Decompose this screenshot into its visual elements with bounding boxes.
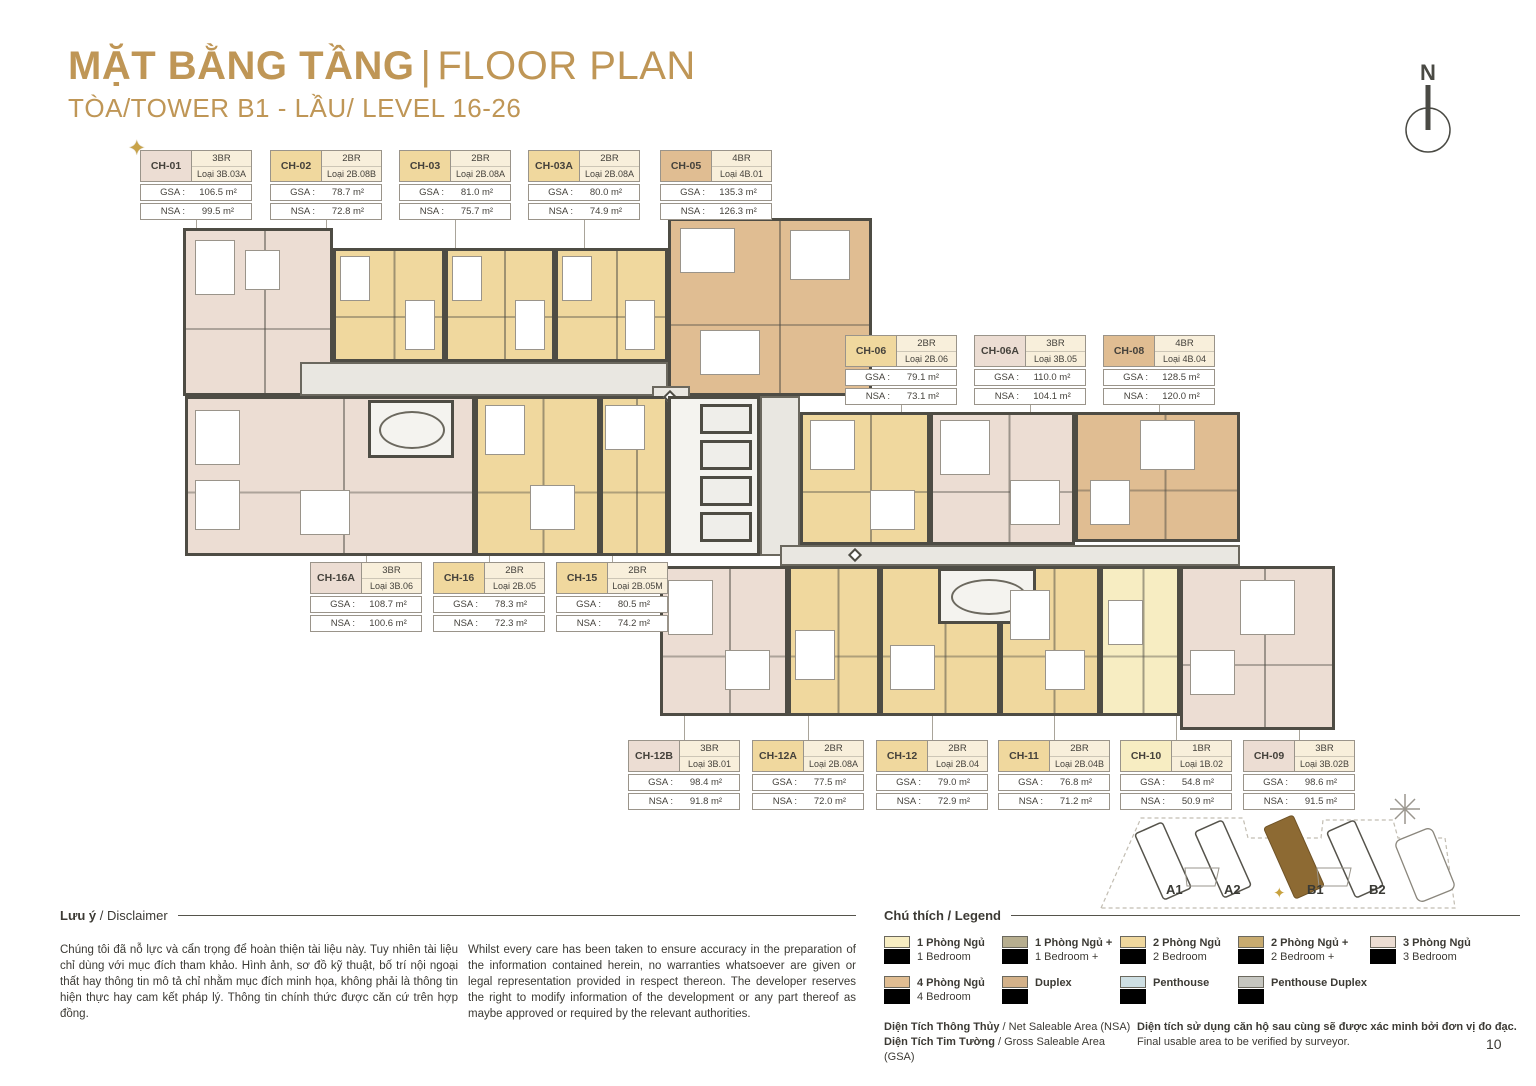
- plan-unit-ch-08: [1075, 412, 1240, 542]
- room: [940, 420, 990, 475]
- compass-icon: N: [1398, 58, 1458, 163]
- legend-label-vn: 3 Phòng Ngủ: [1403, 936, 1471, 950]
- disclaimer-title-en: / Disclaimer: [96, 908, 168, 923]
- room: [195, 240, 235, 295]
- nsa-label: NSA :: [311, 616, 355, 631]
- card-connector-line: [1176, 682, 1177, 742]
- plan-corridor-bottom: [780, 545, 1240, 566]
- room: [668, 580, 713, 635]
- unit-card-header: CH-15 2BR Loại 2B.05M: [556, 562, 668, 594]
- nsa-label: NSA :: [999, 794, 1043, 809]
- disclaimer-text-vn: Chúng tôi đã nỗ lực và cẩn trọng để hoàn…: [60, 942, 458, 1022]
- legend-swatch: [884, 936, 910, 964]
- card-connector-line: [1159, 399, 1160, 459]
- gsa-value: 78.7 m²: [315, 185, 381, 200]
- unit-id: CH-16A: [311, 563, 362, 593]
- room: [452, 256, 482, 301]
- gsa-label: GSA :: [846, 370, 890, 385]
- unit-card-ch-01: CH-01 3BR Loại 3B.03A GSA :106.5 m² NSA …: [140, 150, 252, 220]
- room: [890, 645, 935, 690]
- legend-swatch: [1002, 936, 1028, 964]
- unit-layout-code: Loại 2B.06: [897, 352, 956, 366]
- unit-id: CH-02: [271, 151, 322, 181]
- page-number: 10: [1486, 1036, 1502, 1052]
- card-connector-line: [684, 682, 685, 742]
- page-title-vn: MẶT BẰNG TẦNG: [68, 44, 414, 88]
- room: [1090, 480, 1130, 525]
- elevator-shaft: [700, 512, 752, 542]
- room: [700, 330, 760, 375]
- plan-unit-ch-16: [475, 396, 600, 556]
- unit-layout-code: Loại 3B.05: [1026, 352, 1085, 366]
- building-label-a2: A2: [1224, 882, 1241, 897]
- unit-id: CH-05: [661, 151, 712, 181]
- legend-label-en: 1 Bedroom +: [1035, 950, 1112, 964]
- unit-id: CH-10: [1121, 741, 1172, 771]
- unit-card-header: CH-06 2BR Loại 2B.06: [845, 335, 957, 367]
- card-connector-line: [489, 504, 490, 564]
- unit-card-ch-06a: CH-06A 3BR Loại 3B.05 GSA :110.0 m² NSA …: [974, 335, 1086, 405]
- elevator-core: [668, 396, 760, 556]
- card-connector-line: [612, 504, 613, 564]
- unit-card-ch-05: CH-05 4BR Loại 4B.01 GSA :135.3 m² NSA :…: [660, 150, 772, 220]
- unit-id: CH-12: [877, 741, 928, 771]
- gsa-value: 79.1 m²: [890, 370, 956, 385]
- nsa-value: 74.2 m²: [601, 616, 667, 631]
- card-connector-line: [716, 214, 717, 274]
- header: MẶT BẰNG TẦNG|FLOOR PLAN TÒA/TOWER B1 - …: [68, 44, 696, 122]
- unit-layout-code: Loại 2B.04B: [1050, 757, 1109, 771]
- legend-item: Duplex: [1002, 976, 1120, 1004]
- gsa-value: 79.0 m²: [921, 775, 987, 790]
- unit-layout-code: Loại 2B.05: [485, 579, 544, 593]
- room: [245, 250, 280, 290]
- unit-id: CH-15: [557, 563, 608, 593]
- unit-card-ch-12: CH-12 2BR Loại 2B.04 GSA :79.0 m² NSA :7…: [876, 740, 988, 810]
- nsa-label: NSA :: [529, 204, 573, 219]
- unit-id: CH-16: [434, 563, 485, 593]
- unit-card-ch-08: CH-08 4BR Loại 4B.04 GSA :128.5 m² NSA :…: [1103, 335, 1215, 405]
- title-separator: |: [414, 44, 437, 88]
- legend-label-en: 2 Bedroom: [1153, 950, 1221, 964]
- legend-item: 1 Phòng Ngủ1 Bedroom: [884, 936, 1002, 964]
- star-icon: ✦: [1273, 885, 1286, 902]
- gsa-value: 54.8 m²: [1165, 775, 1231, 790]
- unit-id: CH-01: [141, 151, 192, 181]
- elevator-shaft: [700, 440, 752, 470]
- plan-unit-ch-06: [800, 412, 930, 545]
- disclaimer-title-vn: Lưu ý: [60, 908, 96, 923]
- room: [725, 650, 770, 690]
- unit-card-ch-03a: CH-03A 2BR Loại 2B.08A GSA :80.0 m² NSA …: [528, 150, 640, 220]
- room: [1108, 600, 1143, 645]
- plan-unit-ch-12a: [788, 566, 880, 716]
- unit-card-ch-12b: CH-12B 3BR Loại 3B.01 GSA :98.4 m² NSA :…: [628, 740, 740, 810]
- nsa-value: 71.2 m²: [1043, 794, 1109, 809]
- gsa-label: GSA :: [877, 775, 921, 790]
- legend-label-vn: 4 Phòng Ngủ: [917, 976, 985, 990]
- unit-id: CH-12B: [629, 741, 680, 771]
- room: [1240, 580, 1295, 635]
- card-connector-line: [1054, 682, 1055, 742]
- legend-label-en: 2 Bedroom +: [1271, 950, 1348, 964]
- legend-item: Penthouse: [1120, 976, 1238, 1004]
- legend-label-vn: Penthouse Duplex: [1271, 976, 1367, 990]
- gsa-label: GSA :: [434, 597, 478, 612]
- nsa-label: NSA :: [629, 794, 673, 809]
- unit-bedroom-type: 2BR: [485, 563, 544, 579]
- legend-title-en: / Legend: [944, 908, 1001, 923]
- room: [562, 256, 592, 301]
- nsa-note-en: / Net Saleable Area (NSA): [1000, 1021, 1131, 1033]
- card-connector-line: [366, 504, 367, 564]
- gsa-value: 110.0 m²: [1019, 370, 1085, 385]
- nsa-value: 72.0 m²: [797, 794, 863, 809]
- unit-card-header: CH-03 2BR Loại 2B.08A: [399, 150, 511, 182]
- gsa-label: GSA :: [975, 370, 1019, 385]
- building-label-b1: B1: [1307, 882, 1324, 897]
- building-label-b2: B2: [1369, 882, 1386, 897]
- legend-label-vn: 2 Phòng Ngủ: [1153, 936, 1221, 950]
- plan-unit-ch-12: [880, 566, 1000, 716]
- legend-label-vn: 1 Phòng Ngủ: [917, 936, 985, 950]
- unit-bedroom-type: 2BR: [451, 151, 510, 167]
- legend-label-vn: 2 Phòng Ngủ +: [1271, 936, 1348, 950]
- unit-id: CH-11: [999, 741, 1050, 771]
- room: [605, 405, 645, 450]
- legend-swatch: [1370, 936, 1396, 964]
- room: [680, 228, 735, 273]
- plan-unit-ch-01: [183, 228, 333, 396]
- unit-card-ch-09: CH-09 3BR Loại 3B.02B GSA :98.6 m² NSA :…: [1243, 740, 1355, 810]
- door-marker: [663, 390, 677, 404]
- unit-card-ch-12a: CH-12A 2BR Loại 2B.08A GSA :77.5 m² NSA …: [752, 740, 864, 810]
- unit-card-header: CH-03A 2BR Loại 2B.08A: [528, 150, 640, 182]
- unit-bedroom-type: 2BR: [897, 336, 956, 352]
- legend-item: 4 Phòng Ngủ4 Bedroom: [884, 976, 1002, 1004]
- room: [625, 300, 655, 350]
- gsa-value: 80.0 m²: [573, 185, 639, 200]
- card-connector-line: [901, 399, 902, 459]
- card-connector-line: [584, 214, 585, 274]
- legend-item: 3 Phòng Ngủ3 Bedroom: [1370, 936, 1471, 964]
- unit-bedroom-type: 2BR: [1050, 741, 1109, 757]
- gsa-value: 128.5 m²: [1148, 370, 1214, 385]
- unit-id: CH-03A: [529, 151, 580, 181]
- legend-item: 1 Phòng Ngủ +1 Bedroom +: [1002, 936, 1120, 964]
- room: [340, 256, 370, 301]
- gsa-label: GSA :: [629, 775, 673, 790]
- unit-card-header: CH-05 4BR Loại 4B.01: [660, 150, 772, 182]
- gsa-label: GSA :: [311, 597, 355, 612]
- gsa-value: 98.6 m²: [1288, 775, 1354, 790]
- nsa-label: NSA :: [1104, 389, 1148, 404]
- room: [515, 300, 545, 350]
- disclaimer-title: Lưu ý / Disclaimer: [60, 908, 856, 923]
- room: [405, 300, 435, 350]
- room: [1045, 650, 1085, 690]
- unit-bedroom-type: 3BR: [680, 741, 739, 757]
- nsa-label: NSA :: [434, 616, 478, 631]
- nsa-value: 75.7 m²: [444, 204, 510, 219]
- unit-bedroom-type: 3BR: [1026, 336, 1085, 352]
- stair-core: [938, 568, 1036, 624]
- nsa-value: 91.5 m²: [1288, 794, 1354, 809]
- nsa-label: NSA :: [753, 794, 797, 809]
- legend-label-vn: 1 Phòng Ngủ +: [1035, 936, 1112, 950]
- plan-link-top: [652, 386, 690, 412]
- page-subtitle: TÒA/TOWER B1 - LẦU/ LEVEL 16-26: [68, 94, 696, 122]
- unit-bedroom-type: 3BR: [192, 151, 251, 167]
- unit-card-header: CH-12A 2BR Loại 2B.08A: [752, 740, 864, 772]
- plan-unit-ch-16a: [185, 396, 475, 556]
- unit-card-header: CH-08 4BR Loại 4B.04: [1103, 335, 1215, 367]
- site-minimap: ✦ A1 A2 B1 B2: [1093, 790, 1465, 925]
- card-connector-line: [455, 214, 456, 274]
- stair-core: [368, 400, 454, 458]
- nsa-value: 104.1 m²: [1019, 389, 1085, 404]
- unit-card-ch-06: CH-06 2BR Loại 2B.06 GSA :79.1 m² NSA :7…: [845, 335, 957, 405]
- card-connector-line: [326, 214, 327, 274]
- nsa-value: 99.5 m²: [185, 204, 251, 219]
- gsa-label: GSA :: [661, 185, 705, 200]
- nsa-value: 72.3 m²: [478, 616, 544, 631]
- gsa-label: GSA :: [1104, 370, 1148, 385]
- card-connector-line: [808, 682, 809, 742]
- unit-bedroom-type: 4BR: [1155, 336, 1214, 352]
- legend-swatch: [1120, 976, 1146, 1004]
- unit-card-ch-03: CH-03 2BR Loại 2B.08A GSA :81.0 m² NSA :…: [399, 150, 511, 220]
- unit-layout-code: Loại 2B.05M: [608, 579, 667, 593]
- room: [1010, 590, 1050, 640]
- unit-bedroom-type: 4BR: [712, 151, 771, 167]
- gsa-label: GSA :: [271, 185, 315, 200]
- legend-swatch: [1120, 936, 1146, 964]
- nsa-note-vn: Diện Tích Thông Thủy: [884, 1021, 1000, 1033]
- unit-card-ch-16: CH-16 2BR Loại 2B.05 GSA :78.3 m² NSA :7…: [433, 562, 545, 632]
- building-other-outline: [1394, 827, 1456, 903]
- stair-oval: [379, 411, 445, 449]
- room: [1140, 420, 1195, 470]
- card-connector-line: [196, 214, 197, 274]
- legend-item: 2 Phòng Ngủ +2 Bedroom +: [1238, 936, 1370, 964]
- unit-card-header: CH-10 1BR Loại 1B.02: [1120, 740, 1232, 772]
- unit-layout-code: Loại 2B.04: [928, 757, 987, 771]
- verify-note-en: Final usable area to be verified by surv…: [1137, 1035, 1523, 1050]
- unit-layout-code: Loại 3B.01: [680, 757, 739, 771]
- unit-bedroom-type: 2BR: [580, 151, 639, 167]
- gsa-label: GSA :: [999, 775, 1043, 790]
- unit-layout-code: Loại 4B.04: [1155, 352, 1214, 366]
- unit-card-ch-02: CH-02 2BR Loại 2B.08B GSA :78.7 m² NSA :…: [270, 150, 382, 220]
- legend-label-vn: Penthouse: [1153, 976, 1209, 990]
- room: [1190, 650, 1235, 695]
- room: [300, 490, 350, 535]
- nsa-label: NSA :: [557, 616, 601, 631]
- gsa-value: 135.3 m²: [705, 185, 771, 200]
- unit-bedroom-type: 2BR: [804, 741, 863, 757]
- legend-items: 1 Phòng Ngủ1 Bedroom 1 Phòng Ngủ +1 Bedr…: [884, 936, 1471, 1004]
- nsa-value: 91.8 m²: [673, 794, 739, 809]
- nsa-value: 126.3 m²: [705, 204, 771, 219]
- nsa-value: 73.1 m²: [890, 389, 956, 404]
- gsa-label: GSA :: [529, 185, 573, 200]
- gsa-label: GSA :: [557, 597, 601, 612]
- unit-card-ch-10: CH-10 1BR Loại 1B.02 GSA :54.8 m² NSA :5…: [1120, 740, 1232, 810]
- card-connector-line: [1030, 399, 1031, 459]
- nsa-label: NSA :: [846, 389, 890, 404]
- verify-note-vn: Diện tích sử dụng căn hộ sau cùng sẽ đượ…: [1137, 1021, 1517, 1033]
- unit-layout-code: Loại 2B.08B: [322, 167, 381, 181]
- unit-bedroom-type: 3BR: [362, 563, 421, 579]
- gsa-label: GSA :: [141, 185, 185, 200]
- nsa-label: NSA :: [1121, 794, 1165, 809]
- unit-bedroom-type: 2BR: [608, 563, 667, 579]
- stair-oval: [951, 579, 1027, 615]
- unit-card-ch-11: CH-11 2BR Loại 2B.04B GSA :76.8 m² NSA :…: [998, 740, 1110, 810]
- plan-unit-ch-03a: [555, 248, 668, 362]
- plan-unit-ch-09: [1180, 566, 1335, 730]
- room: [795, 630, 835, 680]
- legend-label-en: 1 Bedroom: [917, 950, 985, 964]
- unit-bedroom-type: 3BR: [1295, 741, 1354, 757]
- area-notes-left: Diện Tích Thông Thủy / Net Saleable Area…: [884, 1020, 1134, 1065]
- elevator-shaft: [700, 476, 752, 506]
- card-connector-line: [932, 682, 933, 742]
- nsa-label: NSA :: [141, 204, 185, 219]
- unit-layout-code: Loại 3B.03A: [192, 167, 251, 181]
- legend-label-en: 3 Bedroom: [1403, 950, 1471, 964]
- legend-item: 2 Phòng Ngủ2 Bedroom: [1120, 936, 1238, 964]
- page-title-en: FLOOR PLAN: [437, 44, 695, 88]
- gsa-label: GSA :: [1244, 775, 1288, 790]
- nsa-label: NSA :: [400, 204, 444, 219]
- plan-unit-ch-11: [1000, 566, 1100, 716]
- legend-label-en: 4 Bedroom: [917, 990, 985, 1004]
- legend-swatch: [1238, 936, 1264, 964]
- unit-layout-code: Loại 2B.08A: [451, 167, 510, 181]
- plan-unit-ch-06a: [930, 412, 1075, 545]
- gsa-note-vn: Diện Tích Tim Tường: [884, 1036, 995, 1048]
- room: [195, 410, 240, 465]
- gsa-value: 78.3 m²: [478, 597, 544, 612]
- unit-card-ch-16a: CH-16A 3BR Loại 3B.06 GSA :108.7 m² NSA …: [310, 562, 422, 632]
- unit-layout-code: Loại 2B.08A: [580, 167, 639, 181]
- unit-card-header: CH-12B 3BR Loại 3B.01: [628, 740, 740, 772]
- legend-swatch: [884, 976, 910, 1004]
- gsa-label: GSA :: [400, 185, 444, 200]
- room: [790, 230, 850, 280]
- gsa-value: 77.5 m²: [797, 775, 863, 790]
- page-title: MẶT BẰNG TẦNG|FLOOR PLAN: [68, 44, 696, 88]
- legend-title-vn: Chú thích: [884, 908, 944, 923]
- unit-card-header: CH-09 3BR Loại 3B.02B: [1243, 740, 1355, 772]
- unit-id: CH-12A: [753, 741, 804, 771]
- nsa-value: 120.0 m²: [1148, 389, 1214, 404]
- room: [195, 480, 240, 530]
- plan-unit-ch-15: [600, 396, 668, 556]
- nsa-label: NSA :: [1244, 794, 1288, 809]
- legend-label-vn: Duplex: [1035, 976, 1072, 990]
- plan-unit-ch-02: [333, 248, 445, 362]
- plan-corridor-mid: [760, 396, 800, 556]
- unit-bedroom-type: 2BR: [322, 151, 381, 167]
- unit-card-header: CH-12 2BR Loại 2B.04: [876, 740, 988, 772]
- unit-card-header: CH-01 3BR Loại 3B.03A: [140, 150, 252, 182]
- gsa-label: GSA :: [1121, 775, 1165, 790]
- card-connector-line: [1299, 682, 1300, 742]
- unit-card-ch-15: CH-15 2BR Loại 2B.05M GSA :80.5 m² NSA :…: [556, 562, 668, 632]
- plan-corridor-top: [300, 362, 668, 396]
- disclaimer-text-en: Whilst every care has been taken to ensu…: [468, 942, 856, 1022]
- brochure-page: MẶT BẰNG TẦNG|FLOOR PLAN TÒA/TOWER B1 - …: [0, 0, 1536, 1086]
- compass-north-label: N: [1420, 60, 1436, 85]
- unit-id: CH-03: [400, 151, 451, 181]
- gsa-value: 81.0 m²: [444, 185, 510, 200]
- nsa-label: NSA :: [661, 204, 705, 219]
- area-notes-right: Diện tích sử dụng căn hộ sau cùng sẽ đượ…: [1137, 1020, 1523, 1050]
- nsa-label: NSA :: [271, 204, 315, 219]
- door-marker: [848, 548, 862, 562]
- unit-id: CH-06: [846, 336, 897, 366]
- building-a1-outline: [1135, 822, 1192, 900]
- legend-item: Penthouse Duplex: [1238, 976, 1370, 1004]
- room: [530, 485, 575, 530]
- building-label-a1: A1: [1166, 882, 1183, 897]
- unit-bedroom-type: 1BR: [1172, 741, 1231, 757]
- gsa-value: 76.8 m²: [1043, 775, 1109, 790]
- unit-card-header: CH-02 2BR Loại 2B.08B: [270, 150, 382, 182]
- unit-id: CH-09: [1244, 741, 1295, 771]
- plan-unit-ch-10: [1100, 566, 1180, 716]
- unit-bedroom-type: 2BR: [928, 741, 987, 757]
- gsa-value: 106.5 m²: [185, 185, 251, 200]
- nsa-label: NSA :: [877, 794, 921, 809]
- room: [1010, 480, 1060, 525]
- unit-id: CH-06A: [975, 336, 1026, 366]
- unit-layout-code: Loại 1B.02: [1172, 757, 1231, 771]
- nsa-value: 72.8 m²: [315, 204, 381, 219]
- elevator-shaft: [700, 404, 752, 434]
- gsa-value: 80.5 m²: [601, 597, 667, 612]
- plan-unit-ch-03: [445, 248, 555, 362]
- unit-card-header: CH-11 2BR Loại 2B.04B: [998, 740, 1110, 772]
- unit-card-header: CH-16 2BR Loại 2B.05: [433, 562, 545, 594]
- star-icon: ✦: [128, 136, 146, 161]
- gsa-label: GSA :: [753, 775, 797, 790]
- divider-line: [178, 915, 856, 916]
- nsa-value: 72.9 m²: [921, 794, 987, 809]
- legend-swatch: [1238, 976, 1264, 1004]
- room: [485, 405, 525, 455]
- room: [810, 420, 855, 470]
- legend-swatch: [1002, 976, 1028, 1004]
- unit-layout-code: Loại 2B.08A: [804, 757, 863, 771]
- unit-layout-code: Loại 3B.02B: [1295, 757, 1354, 771]
- nsa-value: 50.9 m²: [1165, 794, 1231, 809]
- unit-card-header: CH-16A 3BR Loại 3B.06: [310, 562, 422, 594]
- nsa-value: 74.9 m²: [573, 204, 639, 219]
- unit-id: CH-08: [1104, 336, 1155, 366]
- nsa-value: 100.6 m²: [355, 616, 421, 631]
- unit-card-header: CH-06A 3BR Loại 3B.05: [974, 335, 1086, 367]
- gsa-value: 108.7 m²: [355, 597, 421, 612]
- unit-layout-code: Loại 3B.06: [362, 579, 421, 593]
- gsa-value: 98.4 m²: [673, 775, 739, 790]
- unit-layout-code: Loại 4B.01: [712, 167, 771, 181]
- plan-unit-ch-12b: [660, 566, 788, 716]
- plan-unit-ch-05: [668, 218, 872, 396]
